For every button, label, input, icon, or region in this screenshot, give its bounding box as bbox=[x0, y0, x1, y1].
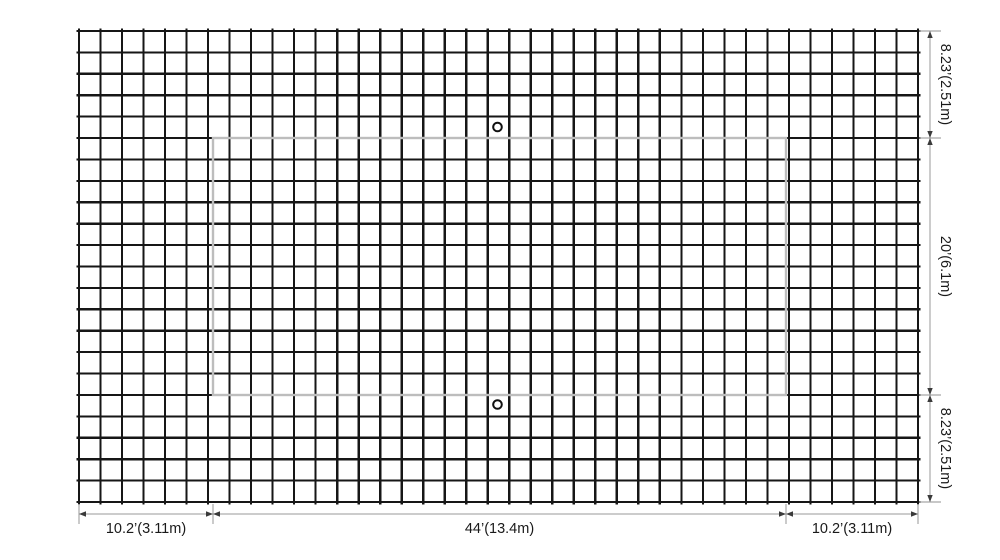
dimension-label-bottom-left: 10.2’(3.11m) bbox=[106, 521, 186, 537]
dimension-label-right-bottom: 8.23’(2.51m) bbox=[937, 408, 953, 489]
net-post-bottom-circle bbox=[493, 400, 502, 409]
dimension-arrowhead bbox=[927, 131, 932, 138]
net-post-top-circle bbox=[493, 123, 502, 132]
right-dimension-labels: 8.23’(2.51m) 20’(6.1m) 8.23’(2.51m) bbox=[937, 44, 953, 489]
dimension-arrowhead bbox=[213, 511, 220, 516]
dimension-arrowhead bbox=[927, 31, 932, 38]
dimension-arrowhead bbox=[79, 511, 86, 516]
dimension-arrowhead bbox=[779, 511, 786, 516]
dimension-label-bottom-center: 44’(13.4m) bbox=[465, 521, 534, 537]
net-mesh-grid bbox=[77, 29, 921, 505]
dimension-arrowhead bbox=[927, 395, 932, 402]
dimension-arrowhead bbox=[927, 495, 932, 502]
net-dimension-diagram: 10.2’(3.11m) 44’(13.4m) 10.2’(3.11m) 8.2… bbox=[0, 0, 1000, 560]
dimension-label-right-middle: 20’(6.1m) bbox=[937, 236, 953, 297]
dimension-arrowhead bbox=[786, 511, 793, 516]
dimension-label-bottom-right: 10.2’(3.11m) bbox=[812, 521, 892, 537]
dimension-arrowhead bbox=[206, 511, 213, 516]
bottom-dimension-labels: 10.2’(3.11m) 44’(13.4m) 10.2’(3.11m) bbox=[106, 521, 892, 537]
dimension-label-right-top: 8.23’(2.51m) bbox=[937, 44, 953, 125]
dimension-arrowhead bbox=[927, 138, 932, 145]
diagram-canvas: 10.2’(3.11m) 44’(13.4m) 10.2’(3.11m) 8.2… bbox=[0, 0, 1000, 560]
dimension-arrowhead bbox=[911, 511, 918, 516]
dimension-arrowhead bbox=[927, 388, 932, 395]
